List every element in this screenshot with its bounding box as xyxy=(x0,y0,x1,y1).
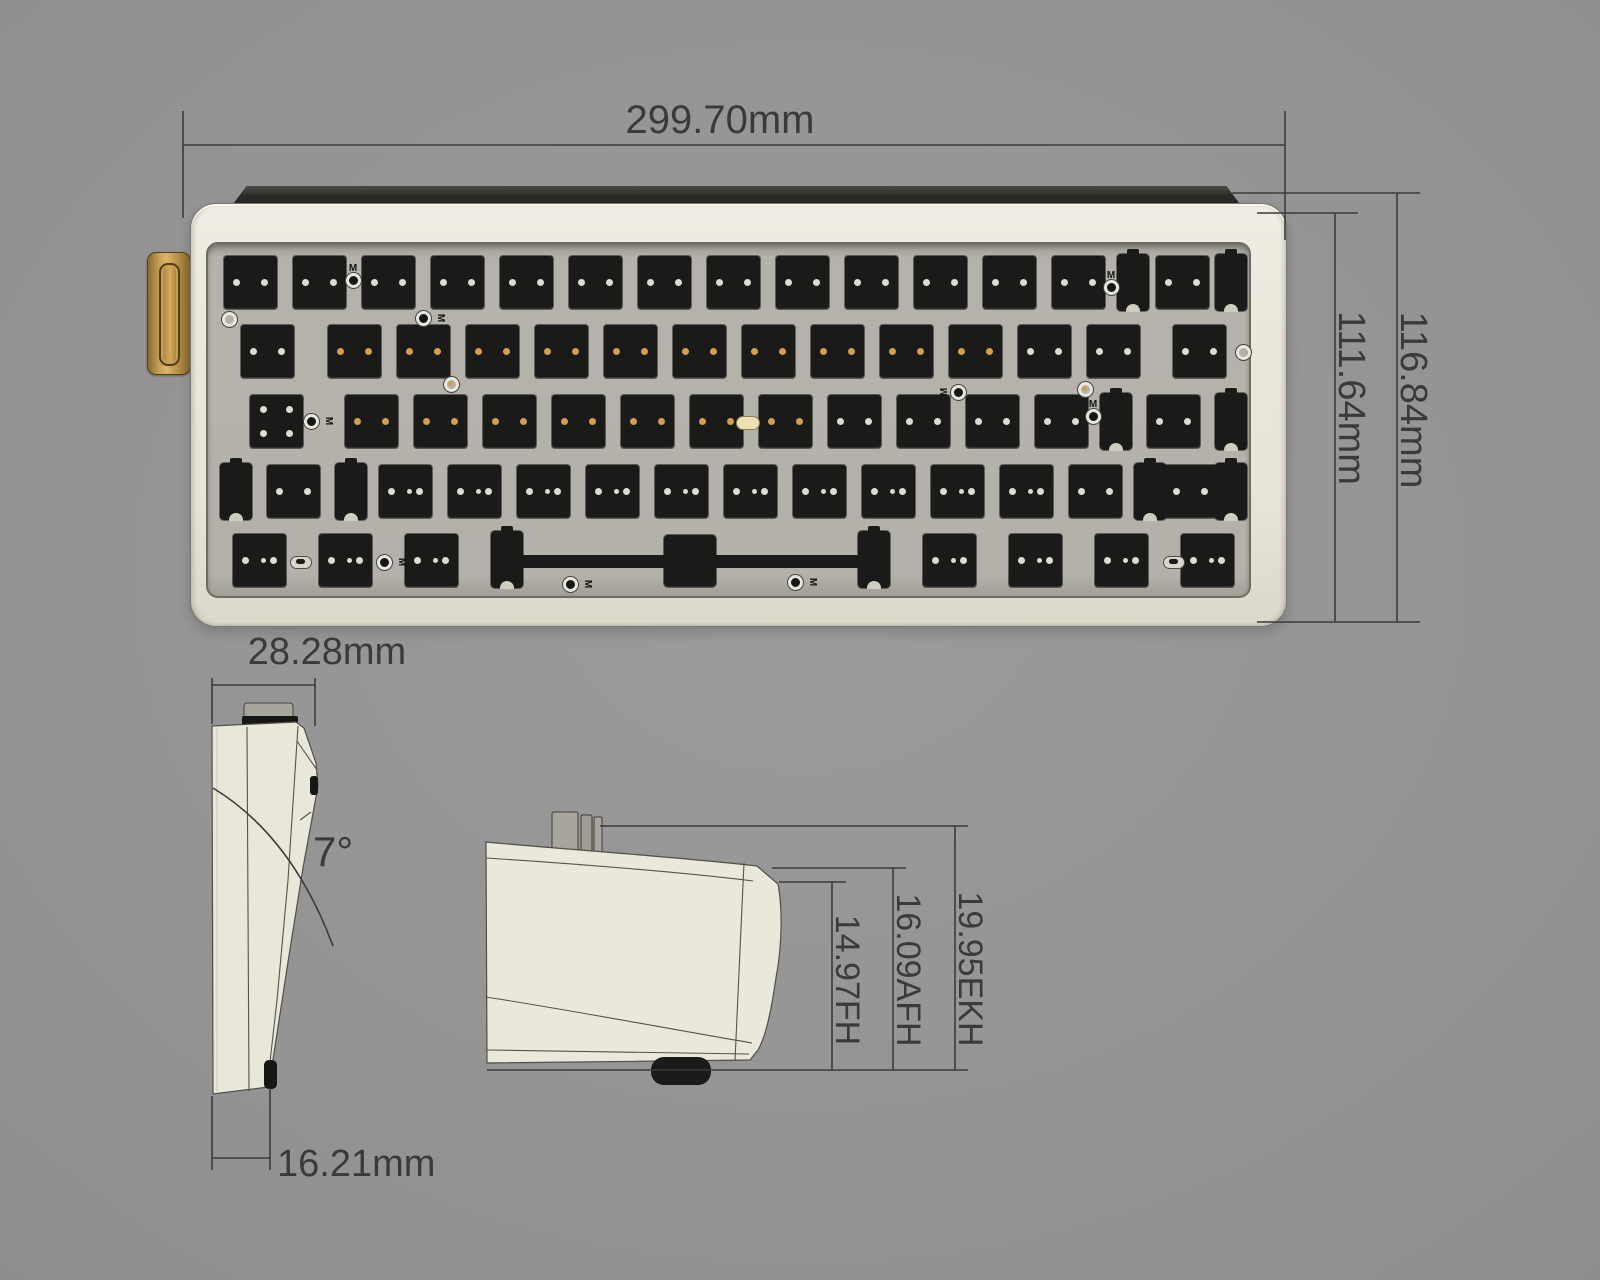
switch-pad xyxy=(1035,395,1088,448)
dim-side-top-width: 28.28mm xyxy=(248,631,406,673)
solder-dot xyxy=(1104,557,1111,564)
ring-marker xyxy=(1077,381,1094,398)
solder-dot xyxy=(906,418,913,425)
oval-core xyxy=(296,559,305,564)
switch-pad xyxy=(949,325,1002,378)
switch-pad xyxy=(880,325,933,378)
solder-dot xyxy=(578,279,585,286)
stabilizer-cutout xyxy=(1117,254,1149,311)
solder-dot xyxy=(813,279,820,286)
solder-dot xyxy=(416,488,423,495)
switch-pad xyxy=(983,256,1036,309)
solder-dot xyxy=(1089,279,1096,286)
oval-marker xyxy=(290,556,312,569)
stabilizer-cutout xyxy=(220,463,252,520)
dot-marker: M xyxy=(346,273,361,288)
switch-pad xyxy=(431,256,484,309)
solder-dot xyxy=(923,279,930,286)
switch-pad xyxy=(569,256,622,309)
stab-tab xyxy=(1110,388,1122,394)
solder-dot xyxy=(276,488,283,495)
dot-marker: M xyxy=(788,575,803,590)
gold-side-handle xyxy=(147,252,191,375)
solder-dot xyxy=(1003,418,1010,425)
side-view-rear-band xyxy=(242,716,298,727)
solder-dot xyxy=(820,348,827,355)
solder-dot xyxy=(509,279,516,286)
stabilizer-cutout xyxy=(335,463,367,520)
front-view-keyboard xyxy=(486,812,781,1085)
solder-dot xyxy=(485,488,492,495)
dot-marker: M xyxy=(416,311,431,326)
switch-pad xyxy=(466,325,519,378)
solder-dot xyxy=(727,418,734,425)
stabilizer-cutout xyxy=(1100,393,1132,450)
stab-notch xyxy=(1224,443,1238,451)
solder-dot xyxy=(1009,488,1016,495)
solder-dot xyxy=(337,348,344,355)
solder-dot xyxy=(802,488,809,495)
solder-dot xyxy=(958,348,965,355)
switch-pad xyxy=(233,534,286,587)
solder-dot xyxy=(675,279,682,286)
solder-dot xyxy=(537,279,544,286)
switch-pad xyxy=(552,395,605,448)
switch-pad xyxy=(707,256,760,309)
switch-pad xyxy=(1181,534,1234,587)
switch-pad xyxy=(621,395,674,448)
solder-dot xyxy=(270,557,277,564)
solder-dot xyxy=(1106,488,1113,495)
switch-pad xyxy=(362,256,415,309)
dim-back-height: 19.95EKH xyxy=(951,892,989,1047)
switch-pad xyxy=(293,256,346,309)
solder-dot xyxy=(710,348,717,355)
stab-tab xyxy=(1225,458,1237,464)
stab-tab xyxy=(345,458,357,464)
switch-plate: MMMMMMMMM xyxy=(206,242,1251,598)
front-view-rear-tab xyxy=(581,815,592,852)
switch-pad xyxy=(405,534,458,587)
dot-marker: M xyxy=(563,577,578,592)
solder-dot xyxy=(641,348,648,355)
solder-dot xyxy=(751,348,758,355)
front-view-rear-tab xyxy=(594,817,602,852)
solder-dot xyxy=(1201,488,1208,495)
solder-dot xyxy=(520,418,527,425)
gold-core xyxy=(448,381,453,386)
solder-dot xyxy=(286,430,293,437)
switch-pad xyxy=(759,395,812,448)
solder-dot xyxy=(1210,348,1217,355)
solder-dot xyxy=(1055,348,1062,355)
solder-dot xyxy=(1046,557,1053,564)
solder-dot xyxy=(1072,418,1079,425)
stab-notch xyxy=(344,513,358,521)
switch-pad xyxy=(483,395,536,448)
switch-pad xyxy=(1156,256,1209,309)
dim-front-height: 14.97FH xyxy=(828,915,866,1045)
switch-pad xyxy=(414,395,467,448)
solder-dot xyxy=(414,557,421,564)
solder-dot xyxy=(1190,557,1197,564)
solder-dot xyxy=(658,418,665,425)
solder-dot xyxy=(492,418,499,425)
switch-pad xyxy=(319,534,372,587)
dot-marker: M xyxy=(304,414,319,429)
solder-dot xyxy=(242,557,249,564)
switch-pad xyxy=(604,325,657,378)
solder-dot xyxy=(468,279,475,286)
switch-pad xyxy=(397,325,450,378)
solder-dot xyxy=(1123,558,1128,563)
solder-dot xyxy=(475,348,482,355)
m-mark: M xyxy=(940,388,950,396)
solder-dot xyxy=(434,348,441,355)
solder-dot xyxy=(1037,488,1044,495)
switch-pad xyxy=(690,395,743,448)
solder-dot xyxy=(683,489,688,494)
solder-dot xyxy=(371,279,378,286)
m-mark: M xyxy=(582,580,592,588)
solder-dot xyxy=(960,557,967,564)
solder-dot xyxy=(1044,418,1051,425)
solder-dot xyxy=(476,489,481,494)
solder-dot xyxy=(572,348,579,355)
switch-pad xyxy=(655,465,708,518)
solder-dot xyxy=(1018,557,1025,564)
solder-dot xyxy=(503,348,510,355)
solder-dot xyxy=(1124,348,1131,355)
stab-notch xyxy=(1224,513,1238,521)
m-mark: M xyxy=(396,558,406,566)
switch-pad xyxy=(862,465,915,518)
switch-pad xyxy=(1095,534,1148,587)
technical-drawing-canvas: MMMMMMMMM xyxy=(0,0,1600,1280)
switch-pad xyxy=(224,256,277,309)
keyboard-case: MMMMMMMMM xyxy=(190,203,1287,627)
solder-dot xyxy=(526,488,533,495)
solder-dot xyxy=(561,418,568,425)
ring-marker xyxy=(1235,344,1252,361)
solder-dot xyxy=(630,418,637,425)
stab-tab xyxy=(230,458,242,464)
solder-dot xyxy=(1209,558,1214,563)
stabilizer-cutout xyxy=(1215,393,1247,450)
solder-dot xyxy=(354,418,361,425)
switch-pad xyxy=(673,325,726,378)
solder-dot xyxy=(286,406,293,413)
switch-pad xyxy=(845,256,898,309)
led-marker xyxy=(736,416,760,430)
solder-dot xyxy=(623,488,630,495)
solder-dot xyxy=(744,279,751,286)
solder-dot xyxy=(959,489,964,494)
solder-dot xyxy=(545,489,550,494)
solder-dot xyxy=(752,489,757,494)
stab-notch xyxy=(1126,304,1140,312)
solder-dot xyxy=(1173,488,1180,495)
m-mark: M xyxy=(435,314,445,322)
solder-dot xyxy=(854,279,861,286)
solder-dot xyxy=(647,279,654,286)
switch-pad xyxy=(328,325,381,378)
side-view-foot xyxy=(264,1060,277,1089)
switch-pad xyxy=(1069,465,1122,518)
switch-pad xyxy=(1147,395,1200,448)
solder-dot xyxy=(406,348,413,355)
dim-typing-angle: 7° xyxy=(313,828,353,875)
solder-dot xyxy=(796,418,803,425)
solder-dot xyxy=(278,348,285,355)
switch-pad xyxy=(379,465,432,518)
solder-dot xyxy=(968,488,975,495)
switch-pad xyxy=(250,395,303,448)
solder-dot xyxy=(1182,348,1189,355)
stab-tab xyxy=(1225,249,1237,255)
stab-notch xyxy=(500,581,514,589)
switch-pad xyxy=(267,465,320,518)
switch-pad xyxy=(500,256,553,309)
solder-dot xyxy=(1020,279,1027,286)
switch-pad xyxy=(1173,325,1226,378)
solder-dot xyxy=(882,279,889,286)
m-mark: M xyxy=(807,578,817,586)
solder-dot xyxy=(457,488,464,495)
solder-dot xyxy=(1078,488,1085,495)
dot-marker: M xyxy=(377,555,392,570)
switch-pad xyxy=(535,325,588,378)
dim-depth-inner: 111.64mm xyxy=(1330,311,1372,485)
angle-arc xyxy=(213,788,333,946)
side-view-rear-knob xyxy=(244,703,293,720)
dim-top-width: 299.70mm xyxy=(626,98,815,142)
solder-dot xyxy=(407,489,412,494)
side-view-keyboard xyxy=(212,703,333,1094)
stab-tab xyxy=(501,526,513,532)
solder-dot xyxy=(356,557,363,564)
solder-dot xyxy=(1096,348,1103,355)
solder-dot xyxy=(365,348,372,355)
solder-dot xyxy=(692,488,699,495)
solder-dot xyxy=(399,279,406,286)
solder-dot xyxy=(1027,348,1034,355)
solder-dot xyxy=(260,406,267,413)
handle-slot xyxy=(159,263,180,366)
solder-dot xyxy=(1193,279,1200,286)
dim-mid-height: 16.09AFH xyxy=(889,893,927,1046)
stab-tab xyxy=(1127,249,1139,255)
stabilizer-cutout xyxy=(1134,463,1166,520)
solder-dot xyxy=(388,488,395,495)
solder-dot xyxy=(589,418,596,425)
solder-dot xyxy=(821,489,826,494)
solder-dot xyxy=(889,348,896,355)
solder-dot xyxy=(761,488,768,495)
solder-dot xyxy=(951,558,956,563)
switch-pad xyxy=(914,256,967,309)
spacebar-switch-pad xyxy=(664,535,716,587)
gold-core xyxy=(1082,386,1087,391)
stab-notch xyxy=(1143,513,1157,521)
oval-marker xyxy=(1163,556,1185,569)
side-view-port-nub xyxy=(310,776,318,795)
solder-dot xyxy=(382,418,389,425)
solder-dot xyxy=(1165,279,1172,286)
switch-pad xyxy=(241,325,294,378)
m-mark: M xyxy=(349,264,357,274)
switch-pad xyxy=(1087,325,1140,378)
solder-dot xyxy=(614,489,619,494)
solder-dot xyxy=(975,418,982,425)
switch-pad xyxy=(586,465,639,518)
solder-dot xyxy=(1028,489,1033,494)
solder-dot xyxy=(440,279,447,286)
m-mark: M xyxy=(1107,271,1115,281)
solder-dot xyxy=(347,558,352,563)
solder-dot xyxy=(304,488,311,495)
solder-dot xyxy=(433,558,438,563)
switch-pad xyxy=(1000,465,1053,518)
solder-dot xyxy=(699,418,706,425)
solder-dot xyxy=(261,558,266,563)
solder-dot xyxy=(682,348,689,355)
solder-dot xyxy=(917,348,924,355)
solder-dot xyxy=(848,348,855,355)
switch-pad xyxy=(923,534,976,587)
solder-dot xyxy=(606,279,613,286)
switch-pad xyxy=(897,395,950,448)
dot-marker: M xyxy=(951,385,966,400)
front-view-rear-tab xyxy=(552,812,578,852)
solder-dot xyxy=(779,348,786,355)
solder-dot xyxy=(716,279,723,286)
stab-tab xyxy=(1144,458,1156,464)
solder-dot xyxy=(992,279,999,286)
solder-dot xyxy=(544,348,551,355)
stabilizer-cutout xyxy=(1215,463,1247,520)
dim-depth-outer: 116.84mm xyxy=(1392,312,1434,489)
solder-dot xyxy=(1061,279,1068,286)
solder-dot xyxy=(785,279,792,286)
m-mark: M xyxy=(323,417,333,425)
switch-pad xyxy=(345,395,398,448)
solder-dot xyxy=(233,279,240,286)
dot-marker: M xyxy=(1086,409,1101,424)
stabilizer-cutout xyxy=(491,531,523,588)
ring-marker xyxy=(443,376,460,393)
solder-dot xyxy=(302,279,309,286)
solder-dot xyxy=(260,430,267,437)
solder-dot xyxy=(890,489,895,494)
stab-tab xyxy=(1225,388,1237,394)
solder-dot xyxy=(613,348,620,355)
dim-side-front-width: 16.21mm xyxy=(277,1143,435,1185)
switch-pad xyxy=(793,465,846,518)
stabilizer-cutout xyxy=(858,531,890,588)
switch-pad xyxy=(776,256,829,309)
solder-dot xyxy=(1184,418,1191,425)
solder-dot xyxy=(1218,557,1225,564)
stab-notch xyxy=(229,513,243,521)
front-view-body xyxy=(486,842,781,1063)
solder-dot xyxy=(1037,558,1042,563)
stabilizer-cutout xyxy=(1215,254,1247,311)
solder-dot xyxy=(934,418,941,425)
oval-core xyxy=(1169,559,1178,564)
m-mark: M xyxy=(1089,400,1097,410)
solder-dot xyxy=(951,279,958,286)
switch-pad xyxy=(448,465,501,518)
solder-dot xyxy=(865,418,872,425)
solder-dot xyxy=(423,418,430,425)
solder-dot xyxy=(830,488,837,495)
stab-notch xyxy=(867,581,881,589)
switch-pad xyxy=(966,395,1019,448)
switch-pad xyxy=(638,256,691,309)
switch-pad xyxy=(811,325,864,378)
stab-notch xyxy=(1109,443,1123,451)
solder-dot xyxy=(932,557,939,564)
solder-dot xyxy=(733,488,740,495)
solder-dot xyxy=(899,488,906,495)
solder-dot xyxy=(986,348,993,355)
solder-dot xyxy=(328,557,335,564)
switch-pad xyxy=(931,465,984,518)
solder-dot xyxy=(554,488,561,495)
switch-pad xyxy=(517,465,570,518)
front-view-foot xyxy=(651,1057,711,1085)
solder-dot xyxy=(261,279,268,286)
dot-marker: M xyxy=(1104,280,1119,295)
switch-pad xyxy=(828,395,881,448)
solder-dot xyxy=(451,418,458,425)
solder-dot xyxy=(330,279,337,286)
switch-pad xyxy=(1164,465,1217,518)
ring-marker xyxy=(221,311,238,328)
solder-dot xyxy=(1156,418,1163,425)
switch-pad xyxy=(1009,534,1062,587)
solder-dot xyxy=(664,488,671,495)
stab-tab xyxy=(868,526,880,532)
solder-dot xyxy=(250,348,257,355)
stab-notch xyxy=(1224,304,1238,312)
switch-pad xyxy=(1018,325,1071,378)
solder-dot xyxy=(768,418,775,425)
switch-pad xyxy=(742,325,795,378)
solder-dot xyxy=(940,488,947,495)
solder-dot xyxy=(871,488,878,495)
side-view-body xyxy=(212,722,318,1094)
solder-dot xyxy=(837,418,844,425)
solder-dot xyxy=(1132,557,1139,564)
switch-pad xyxy=(1052,256,1105,309)
switch-pad xyxy=(724,465,777,518)
solder-dot xyxy=(442,557,449,564)
solder-dot xyxy=(595,488,602,495)
